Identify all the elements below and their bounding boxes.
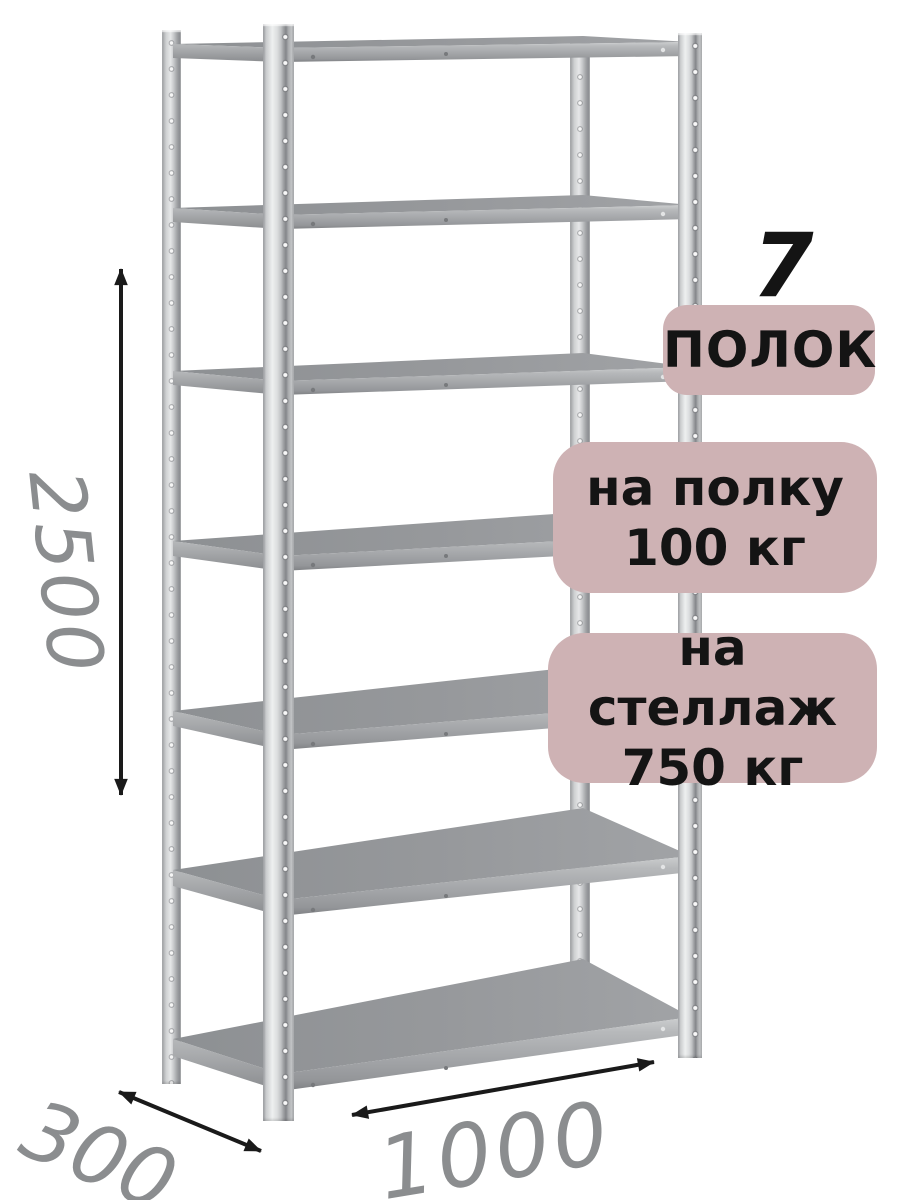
rack-shelf-1: [173, 36, 691, 62]
product-image: 2500 300 1000 7 ПОЛОК на полку 100 кг на…: [0, 0, 900, 1200]
shelf-load-badge: на полку 100 кг: [553, 442, 877, 593]
rack-load-line2: 750 кг: [548, 738, 877, 798]
width-dimension-label: 1000: [371, 1083, 619, 1200]
rack-shelf-7: [173, 959, 691, 1091]
rack-illustration: 2500 300 1000: [0, 0, 900, 1200]
width-dimension: 1000: [352, 1062, 654, 1200]
rack-shelf-6: [173, 808, 691, 916]
shelf-load-line2: 100 кг: [553, 518, 877, 578]
rack-load-badge: на стеллаж 750 кг: [548, 633, 877, 783]
shelf-count-label: ПОЛОК: [663, 321, 877, 379]
shelf-load-line1: на полку: [553, 458, 877, 518]
depth-dimension: 300: [8, 1082, 261, 1200]
rack-load-line1: на стеллаж: [548, 618, 877, 738]
height-dimension: 2500: [11, 269, 121, 795]
rack-post-front-left: [263, 24, 294, 1121]
shelf-count-badge: ПОЛОК: [663, 305, 875, 395]
rack-shelf-3: [173, 353, 691, 395]
height-dimension-label: 2500: [11, 465, 121, 679]
shelf-count-number: 7: [723, 222, 843, 310]
rack-shelf-2: [173, 195, 691, 229]
depth-dimension-label: 300: [8, 1082, 189, 1200]
